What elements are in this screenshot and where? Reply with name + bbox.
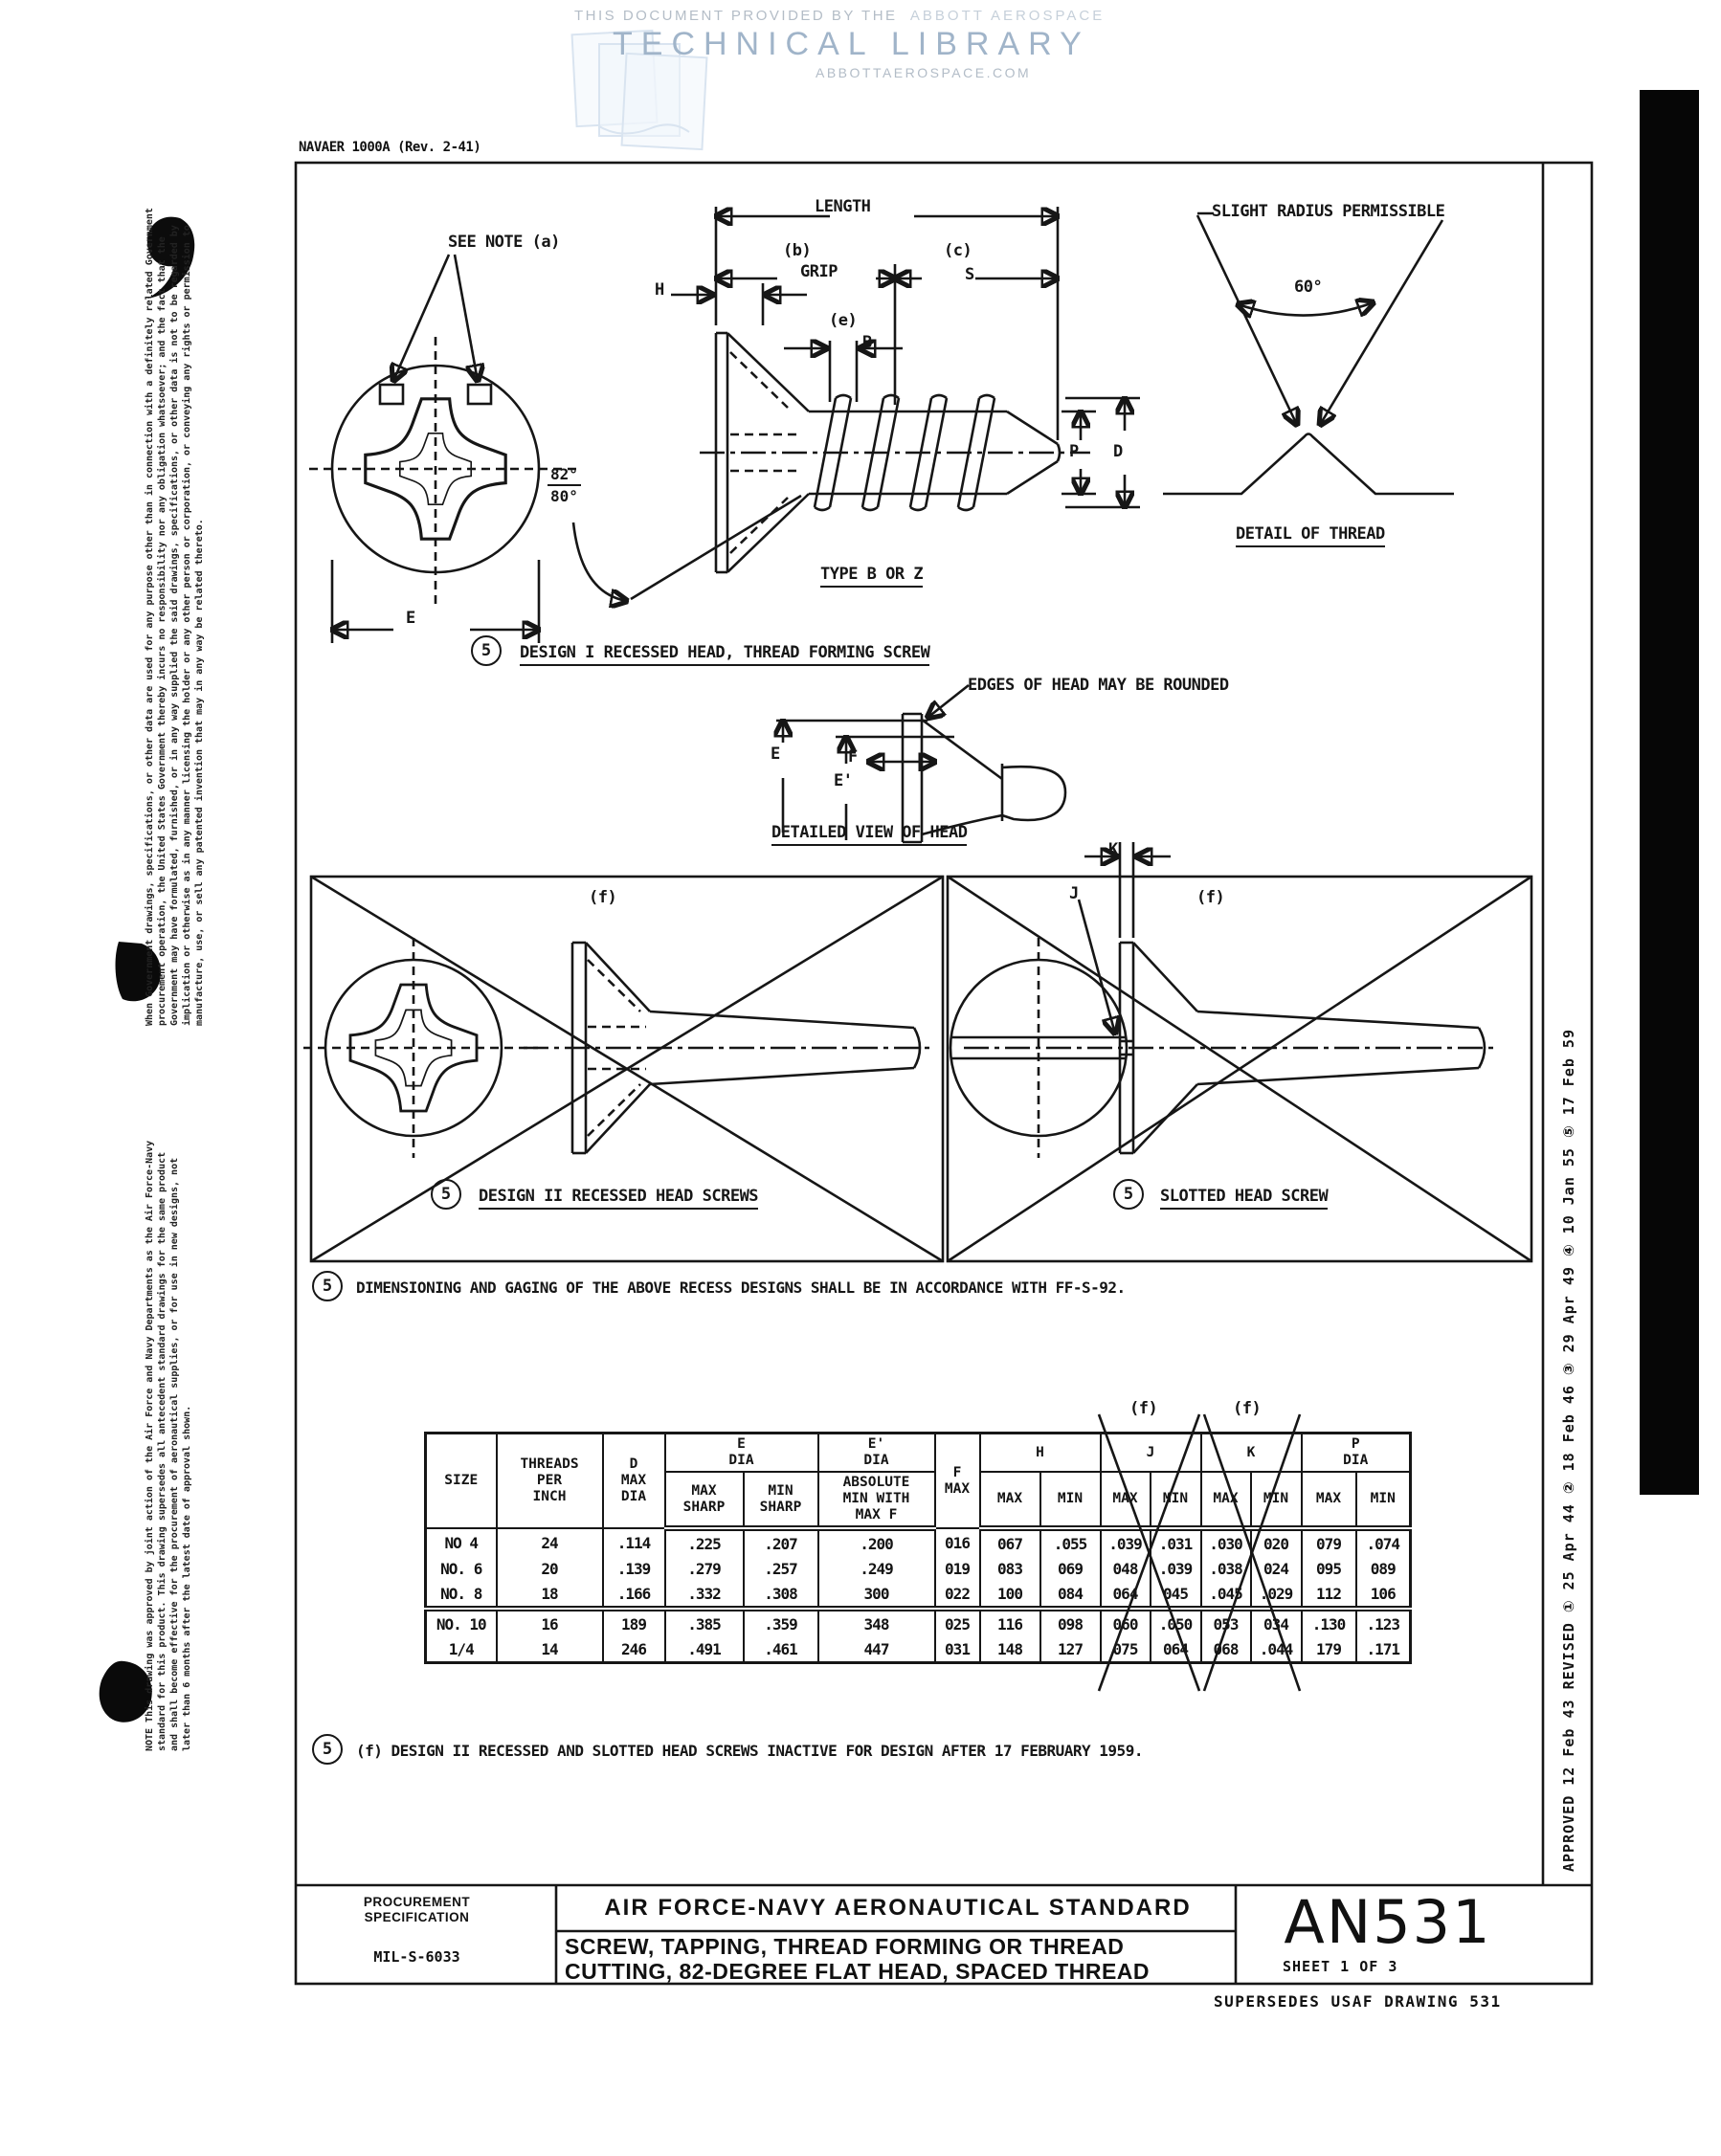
table-cell: .123 <box>1356 1609 1411 1636</box>
head-detail-view <box>776 685 1065 842</box>
scanned-drawing-page: THIS DOCUMENT PROVIDED BY THE ABBOTT AER… <box>0 0 1721 2156</box>
sheet-label: SHEET 1 OF 3 <box>1283 1958 1397 1975</box>
col-e-dia: E DIA <box>665 1434 818 1473</box>
drawing-linework <box>294 161 1594 1986</box>
table-cell: .249 <box>818 1556 935 1581</box>
table-cell: .114 <box>603 1528 665 1556</box>
head-angle-callout: 82° 80° <box>548 465 581 505</box>
col-e-max-sharp: MAX SHARP <box>665 1472 744 1528</box>
circled-5-marker: 5 <box>312 1271 343 1301</box>
table-cell: 016 <box>935 1528 980 1556</box>
table-cell: 148 <box>980 1636 1040 1663</box>
table-cell: .166 <box>603 1581 665 1609</box>
b-tag-label: (e) <box>829 311 857 330</box>
margin-disclaimer-text: When Government drawings, specifications… <box>144 191 257 1026</box>
watermark-provided-by: THIS DOCUMENT PROVIDED BY THE ABBOTT AER… <box>574 8 1105 24</box>
design2-caption: DESIGN II RECESSED HEAD SCREWS <box>479 1187 758 1210</box>
length-label: LENGTH <box>815 197 870 216</box>
table-cell: 14 <box>497 1636 603 1663</box>
standard-title: AIR FORCE-NAVY AERONAUTICAL STANDARD <box>563 1895 1233 1922</box>
table-cell: 447 <box>818 1636 935 1663</box>
j-label: J <box>1069 884 1079 903</box>
watermark-library: TECHNICAL LIBRARY <box>613 26 1090 63</box>
design1-caption: DESIGN I RECESSED HEAD, THREAD FORMING S… <box>520 643 929 666</box>
grip-tag-label: (b) <box>783 241 811 260</box>
table-cell: 031 <box>935 1636 980 1663</box>
table-cell: .139 <box>603 1556 665 1581</box>
slight-radius-label: SLIGHT RADIUS PERMISSIBLE <box>1212 202 1444 221</box>
table-cell: .491 <box>665 1636 744 1663</box>
inactive-footnote: (f) DESIGN II RECESSED AND SLOTTED HEAD … <box>356 1742 1143 1760</box>
table-cell: 18 <box>497 1581 603 1609</box>
recessed-head-front-view <box>309 255 577 643</box>
col-threads-per-inch: THREADS PER INCH <box>497 1434 603 1529</box>
table-cell: 100 <box>980 1581 1040 1609</box>
circled-5-marker: 5 <box>312 1734 343 1765</box>
e-dim-label: E <box>406 609 415 628</box>
table-cell: 089 <box>1356 1556 1411 1581</box>
col-h: H <box>980 1434 1101 1473</box>
h-label: H <box>655 280 664 300</box>
table-cell: 24 <box>497 1528 603 1556</box>
form-number: NAVAER 1000A (Rev. 2-41) <box>299 140 481 155</box>
table-cell: 189 <box>603 1609 665 1636</box>
col-p-dia: P DIA <box>1302 1434 1411 1473</box>
e-prime-label: E' <box>834 771 852 790</box>
drawing-title-line2: CUTTING, 82-DEGREE FLAT HEAD, SPACED THR… <box>565 1959 1150 1985</box>
table-cell: NO. 8 <box>426 1581 497 1609</box>
table-cell: 022 <box>935 1581 980 1609</box>
s-tag-label: (c) <box>944 241 972 260</box>
table-cell: 348 <box>818 1609 935 1636</box>
s-label: S <box>965 265 974 284</box>
col-f-max: F MAX <box>935 1434 980 1529</box>
table-cell: 019 <box>935 1556 980 1581</box>
grip-label: GRIP <box>800 262 838 281</box>
table-cell: 1/4 <box>426 1636 497 1663</box>
table-cell: .225 <box>665 1528 744 1556</box>
col-e-min-sharp: MIN SHARP <box>744 1472 818 1528</box>
detailed-view-caption: DETAILED VIEW OF HEAD <box>771 823 967 846</box>
sixty-deg-label: 60° <box>1294 278 1322 297</box>
table-cell: .207 <box>744 1528 818 1556</box>
margin-note-text: NOTE This drawing was approved by joint … <box>144 1134 257 1751</box>
f-label: F <box>848 747 858 767</box>
procurement-spec-number: MIL-S-6033 <box>304 1948 529 1966</box>
table-cell: .308 <box>744 1581 818 1609</box>
table-cell: NO 4 <box>426 1528 497 1556</box>
table-cell: .171 <box>1356 1636 1411 1663</box>
col-e-prime-abs-min: ABSOLUTE MIN WITH MAX F <box>818 1472 935 1528</box>
table-cell: 300 <box>818 1581 935 1609</box>
type-b-or-z-label: TYPE B OR Z <box>820 565 923 588</box>
d-label: D <box>1113 442 1123 461</box>
angle-82-label: 82° <box>548 465 581 486</box>
procurement-spec-label: PROCUREMENT SPECIFICATION <box>304 1895 529 1925</box>
revision-strip-text: APPROVED 12 Feb 43 REVISED ① 25 Apr 44 ②… <box>1545 147 1594 1885</box>
table-column-crossout <box>1091 1392 1311 1703</box>
margin-note: NOTE This drawing was approved by joint … <box>144 1134 257 1751</box>
table-cell: 20 <box>497 1556 603 1581</box>
col-e-prime-dia: E' DIA <box>818 1434 935 1473</box>
e-label: E <box>771 745 780 764</box>
watermark-site: ABBOTTAEROSPACE.COM <box>816 65 1031 80</box>
watermark-brand: ABBOTT AEROSPACE <box>910 8 1105 24</box>
k-label: K <box>1108 840 1118 859</box>
b-label: B <box>862 333 872 352</box>
screw-side-view <box>573 207 1140 601</box>
table-cell: 025 <box>935 1609 980 1636</box>
table-cell: .257 <box>744 1556 818 1581</box>
table-cell: 083 <box>980 1556 1040 1581</box>
see-note-label: SEE NOTE (a) <box>448 233 560 252</box>
col-p-min: MIN <box>1356 1472 1411 1528</box>
table-cell: .461 <box>744 1636 818 1663</box>
f-tag-right-label: (f) <box>1196 888 1224 907</box>
drawing-title-line1: SCREW, TAPPING, THREAD FORMING OR THREAD <box>565 1934 1124 1960</box>
table-cell: 246 <box>603 1636 665 1663</box>
edges-rounded-label: EDGES OF HEAD MAY BE ROUNDED <box>968 676 1229 695</box>
table-cell: 106 <box>1356 1581 1411 1609</box>
table-cell: 116 <box>980 1609 1040 1636</box>
circled-5-marker: 5 <box>1113 1179 1144 1210</box>
col-d-max-dia: D MAX DIA <box>603 1434 665 1529</box>
table-cell: 16 <box>497 1609 603 1636</box>
p-label: P <box>1069 442 1079 461</box>
table-cell: NO. 6 <box>426 1556 497 1581</box>
table-cell: .332 <box>665 1581 744 1609</box>
col-size: SIZE <box>426 1434 497 1529</box>
margin-disclaimer: When Government drawings, specifications… <box>144 191 257 1026</box>
supersedes-note: SUPERSEDES USAF DRAWING 531 <box>1214 1992 1502 2011</box>
drawing-number: AN531 <box>1244 1887 1531 1957</box>
table-cell: .074 <box>1356 1528 1411 1556</box>
f-tag-left-label: (f) <box>589 888 616 907</box>
table-cell: .385 <box>665 1609 744 1636</box>
thread-detail-view <box>1163 213 1454 494</box>
col-h-max: MAX <box>980 1472 1040 1528</box>
circled-5-marker: 5 <box>471 635 502 666</box>
table-cell: .279 <box>665 1556 744 1581</box>
table-cell: 067 <box>980 1528 1040 1556</box>
slotted-caption: SLOTTED HEAD SCREW <box>1160 1187 1328 1210</box>
scan-black-bar <box>1640 90 1699 1495</box>
gaging-note: DIMENSIONING AND GAGING OF THE ABOVE REC… <box>356 1278 1126 1297</box>
table-cell: NO. 10 <box>426 1609 497 1636</box>
detail-of-thread-caption: DETAIL OF THREAD <box>1236 524 1385 547</box>
circled-5-marker: 5 <box>431 1179 461 1210</box>
table-cell: .200 <box>818 1528 935 1556</box>
table-cell: .359 <box>744 1609 818 1636</box>
revision-strip: APPROVED 12 Feb 43 REVISED ① 25 Apr 44 ②… <box>1545 161 1594 1885</box>
angle-80-label: 80° <box>548 486 581 505</box>
